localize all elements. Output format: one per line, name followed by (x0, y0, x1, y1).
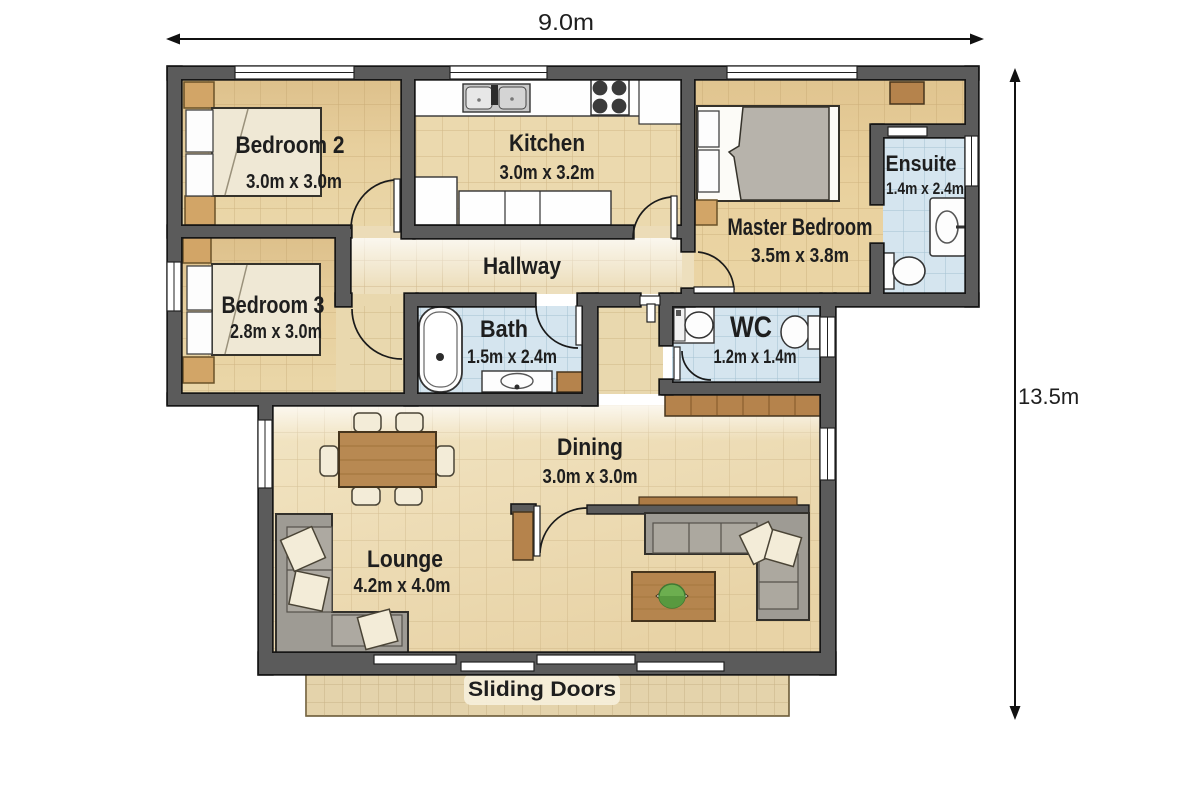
svg-text:Lounge: Lounge (367, 546, 443, 573)
svg-text:Kitchen: Kitchen (509, 130, 585, 157)
svg-text:Master Bedroom: Master Bedroom (728, 214, 873, 241)
svg-text:13.5m: 13.5m (1018, 384, 1079, 409)
svg-text:2.8m x 3.0m: 2.8m x 3.0m (230, 321, 322, 343)
svg-text:Sliding Doors: Sliding Doors (468, 678, 616, 701)
svg-text:Ensuite: Ensuite (886, 151, 957, 176)
svg-text:3.0m x 3.0m: 3.0m x 3.0m (543, 466, 638, 488)
svg-text:3.5m x 3.8m: 3.5m x 3.8m (751, 245, 849, 267)
svg-text:9.0m: 9.0m (538, 9, 594, 35)
svg-text:3.0m x 3.2m: 3.0m x 3.2m (500, 162, 595, 184)
svg-text:4.2m x 4.0m: 4.2m x 4.0m (354, 575, 451, 597)
svg-text:1.5m x 2.4m: 1.5m x 2.4m (467, 347, 557, 368)
svg-text:Bath: Bath (480, 316, 528, 343)
svg-text:Bedroom 3: Bedroom 3 (222, 292, 325, 319)
svg-text:Hallway: Hallway (483, 253, 562, 280)
svg-text:3.0m x 3.0m: 3.0m x 3.0m (246, 171, 342, 193)
svg-text:1.4m x 2.4m: 1.4m x 2.4m (886, 180, 964, 198)
svg-text:Bedroom 2: Bedroom 2 (236, 132, 345, 159)
svg-text:WC: WC (730, 311, 772, 344)
svg-text:Dining: Dining (557, 434, 623, 461)
svg-text:1.2m x 1.4m: 1.2m x 1.4m (714, 347, 797, 368)
